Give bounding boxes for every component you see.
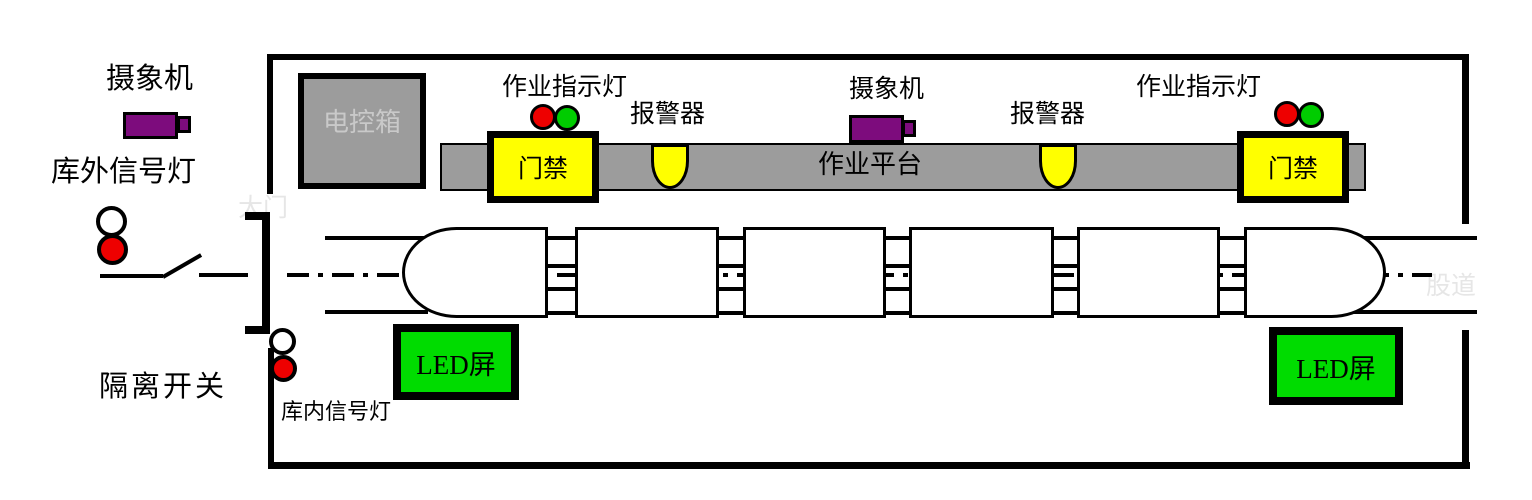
gate-bracket-stub-bottom (245, 326, 270, 334)
outside-signal-white-icon (96, 206, 127, 237)
alarm-left-label: 报警器 (630, 101, 705, 129)
alarm-right-label: 报警器 (1010, 101, 1085, 129)
train-coupling (719, 227, 743, 318)
inside-signal-white-icon (269, 328, 296, 355)
train-tail-car (1244, 227, 1386, 318)
control-box: 电控箱 (298, 73, 426, 189)
depot-safety-diagram: 大门 股道 摄象机 库外信号灯 隔离开关 库内信号灯 电控箱 作业平台 门禁 门… (0, 0, 1532, 500)
indicator-left-green-icon (554, 105, 580, 131)
camera-left-lens-icon (177, 116, 191, 133)
led-screen-right: LED屏 (1269, 327, 1403, 405)
control-box-label: 电控箱 (323, 102, 401, 139)
isolation-switch-label: 隔离开关 (99, 372, 227, 404)
switch-blade (162, 253, 202, 278)
train-coupling (886, 227, 909, 318)
rail-left-bottom (325, 310, 428, 314)
indicator-left-red-icon (530, 104, 556, 130)
depot-wall-left-upper (267, 54, 273, 194)
depot-wall-bottom (268, 462, 1470, 469)
indicator-right-label: 作业指示灯 (1136, 74, 1261, 102)
train-coupling (1220, 227, 1244, 318)
rail-left-top (325, 236, 428, 240)
switch-line-right (199, 273, 248, 277)
outside-signal-red-icon (97, 234, 128, 265)
access-control-right-label: 门禁 (1268, 149, 1318, 185)
gate-bracket-post (262, 212, 270, 334)
camera-left-icon (123, 112, 178, 139)
led-screen-left: LED屏 (393, 324, 519, 400)
led-screen-right-label: LED屏 (1296, 347, 1375, 386)
depot-wall-right-upper (1462, 54, 1469, 224)
train-head-car (402, 227, 548, 318)
train-coupling (1054, 227, 1077, 318)
depot-wall-top (268, 54, 1468, 60)
outside-signal-label: 库外信号灯 (51, 157, 196, 189)
inside-signal-red-icon (270, 355, 297, 382)
work-platform-label: 作业平台 (818, 151, 922, 180)
camera-mid-lens-icon (902, 120, 916, 137)
track-faint-label: 股道 (1426, 266, 1476, 302)
train-car (909, 227, 1054, 318)
indicator-left-label: 作业指示灯 (502, 74, 627, 102)
train-car (1077, 227, 1220, 318)
train-coupling (548, 227, 575, 318)
camera-mid-label: 摄象机 (849, 76, 924, 104)
access-control-left-label: 门禁 (518, 149, 568, 185)
train-car (575, 227, 719, 318)
access-control-left: 门禁 (487, 131, 599, 203)
indicator-right-green-icon (1298, 102, 1324, 128)
led-screen-left-label: LED屏 (416, 343, 495, 382)
rail-right-bottom (1350, 310, 1477, 314)
camera-mid-icon (849, 115, 904, 143)
camera-left-label: 摄象机 (106, 64, 193, 96)
indicator-right-red-icon (1274, 101, 1300, 127)
train-car (743, 227, 886, 318)
depot-wall-right-lower (1462, 330, 1469, 469)
access-control-right: 门禁 (1237, 131, 1349, 203)
inside-signal-label: 库内信号灯 (281, 400, 391, 424)
gate-bracket-stub-top (245, 212, 270, 220)
switch-line-left (100, 274, 163, 278)
